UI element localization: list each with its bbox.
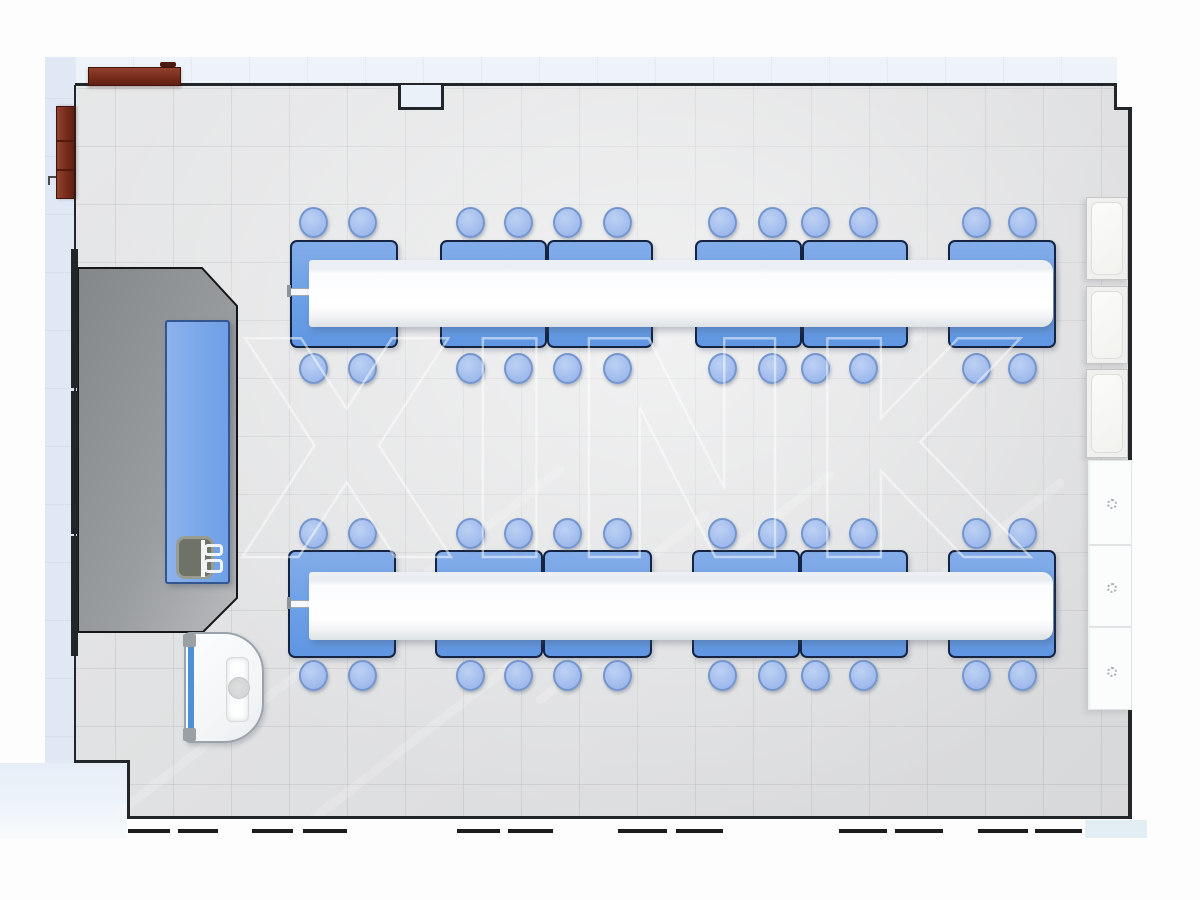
- wall-left-door-frame-2: [71, 391, 78, 534]
- cabinet-knob: [1107, 583, 1117, 593]
- lab-stool: [504, 207, 533, 238]
- wash-station-bracket: [183, 634, 196, 647]
- wash-station-bracket: [183, 728, 196, 741]
- lab-stool: [348, 518, 377, 549]
- wall-cabinet-door-panel: [1091, 374, 1123, 453]
- lab-stool: [708, 660, 737, 691]
- lab-stool: [708, 207, 737, 238]
- lab-stool: [299, 518, 328, 549]
- wall-bottom-left-step-h: [74, 760, 130, 763]
- lab-stool: [299, 660, 328, 691]
- brown-cabinet-shelf-line: [57, 140, 74, 142]
- window-dash: [252, 829, 293, 833]
- lab-stool: [758, 207, 787, 238]
- lab-stool: [603, 518, 632, 549]
- lab-stool: [348, 660, 377, 691]
- lab-stool: [553, 660, 582, 691]
- lab-stool: [603, 353, 632, 384]
- wall-cabinet: [1086, 197, 1128, 280]
- wall-cabinet: [1086, 286, 1128, 364]
- lab-stool: [801, 207, 830, 238]
- reagent-shelf: [309, 260, 1053, 327]
- wall-left-door-frame-3: [71, 536, 78, 656]
- lab-stool: [962, 660, 991, 691]
- wall-left-door-frame-1: [71, 249, 78, 388]
- window-dash: [457, 829, 500, 833]
- lab-stool: [603, 660, 632, 691]
- lab-stool: [553, 207, 582, 238]
- shelf-support-rod: [289, 288, 310, 296]
- lab-stool: [603, 207, 632, 238]
- lab-stool: [849, 660, 878, 691]
- lab-stool: [1008, 660, 1037, 691]
- reagent-shelf: [309, 572, 1053, 640]
- wall-bottom-left-step-v: [127, 761, 130, 818]
- wall-hook: [48, 176, 50, 185]
- lab-stool: [962, 353, 991, 384]
- lab-stool: [708, 518, 737, 549]
- shelf-support-cap: [287, 597, 291, 609]
- lab-stool: [849, 518, 878, 549]
- window-dash: [895, 829, 943, 833]
- lab-stool: [348, 353, 377, 384]
- laboratory-floorplan-render: XINK: [0, 0, 1200, 900]
- wash-station-body: [184, 632, 264, 743]
- lab-stool: [1008, 353, 1037, 384]
- cabinet-knob: [1107, 499, 1117, 509]
- lab-stool: [801, 353, 830, 384]
- lab-stool: [504, 518, 533, 549]
- wall-top-right-step-v: [1114, 83, 1117, 110]
- demo-bench-faucet-loop: [204, 544, 223, 556]
- lab-stool: [962, 518, 991, 549]
- lab-stool: [801, 660, 830, 691]
- shelf-support-rod: [289, 600, 310, 608]
- lab-stool: [849, 353, 878, 384]
- cabinet-knob: [1107, 667, 1117, 677]
- lab-stool: [758, 518, 787, 549]
- window-dash: [618, 829, 667, 833]
- lab-stool: [456, 353, 485, 384]
- lab-stool: [456, 518, 485, 549]
- shelf-support-cap: [287, 285, 291, 297]
- wall-cabinet: [1086, 369, 1128, 458]
- brown-cabinet-top: [88, 67, 181, 86]
- window-dash: [303, 829, 347, 833]
- lab-stool: [962, 207, 991, 238]
- wall-bottom: [127, 816, 1132, 819]
- lab-stool: [758, 353, 787, 384]
- lab-stool: [504, 353, 533, 384]
- demo-bench-faucet-loop: [204, 559, 223, 573]
- lab-stool: [801, 518, 830, 549]
- lab-stool: [553, 353, 582, 384]
- window-dash: [839, 829, 887, 833]
- lab-stool: [553, 518, 582, 549]
- brown-cabinet-left: [56, 106, 75, 199]
- lab-stool: [348, 207, 377, 238]
- window-dash: [178, 829, 218, 833]
- lab-stool: [849, 207, 878, 238]
- wall-cabinet-door-panel: [1091, 291, 1123, 359]
- window-dash: [128, 829, 170, 833]
- lab-stool: [1008, 207, 1037, 238]
- lab-stool: [299, 207, 328, 238]
- brown-cabinet-handle: [160, 62, 176, 67]
- lab-stool: [708, 353, 737, 384]
- wash-station-drain: [228, 677, 250, 699]
- window-dash: [508, 829, 553, 833]
- lab-stool: [456, 660, 485, 691]
- window-dash: [1035, 829, 1082, 833]
- lab-stool: [758, 660, 787, 691]
- window-dash: [978, 829, 1028, 833]
- wall-top: [75, 83, 1117, 86]
- brown-cabinet-shelf-line: [57, 169, 74, 171]
- wall-top-recess: [398, 85, 444, 110]
- lab-stool: [456, 207, 485, 238]
- lab-stool: [299, 353, 328, 384]
- wall-cabinet-door-panel: [1091, 202, 1123, 275]
- window-dash: [676, 829, 723, 833]
- wash-station-blue-rail: [188, 646, 194, 732]
- lab-stool: [504, 660, 533, 691]
- lab-stool: [1008, 518, 1037, 549]
